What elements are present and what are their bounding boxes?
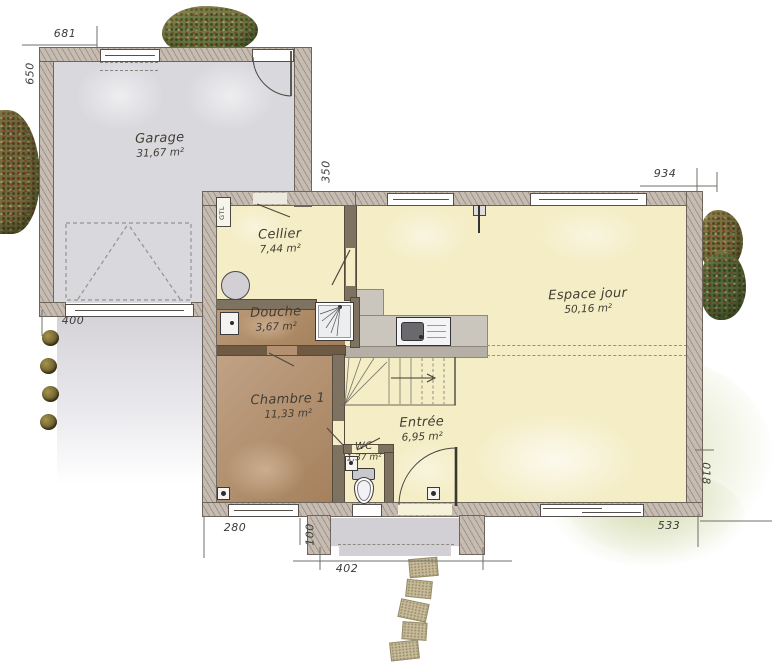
garage-south-wall-left — [40, 303, 65, 316]
kitchen-counter-step — [356, 290, 383, 316]
stepping-stone — [405, 579, 433, 600]
tree-left — [0, 110, 40, 234]
cellier-douche-wall — [216, 300, 316, 309]
bush-dot — [40, 414, 57, 430]
water-heater — [221, 271, 250, 300]
bay-window — [540, 504, 644, 517]
wc-right-wall — [385, 453, 393, 503]
wc-window — [352, 504, 382, 517]
basin-drain — [349, 461, 353, 465]
sink-drainer-line — [427, 331, 446, 332]
wc-door-opening — [352, 445, 378, 453]
door-stop — [217, 487, 230, 500]
bay-window-slider-line — [543, 508, 602, 509]
douche-chambre-door-opening — [267, 346, 297, 355]
floor-plan: GTL — [0, 0, 775, 666]
sink-drainer-line — [427, 337, 446, 338]
house-east-wall — [687, 192, 702, 516]
wall-post — [478, 205, 480, 233]
chambre-window — [228, 504, 299, 517]
garage-vent-marks — [100, 62, 158, 71]
bush-dot — [42, 330, 59, 346]
bush-dot — [42, 386, 59, 402]
dim-porch-width: 402 — [326, 562, 368, 575]
garage-north-window — [100, 49, 160, 62]
bay-window-slider-line — [582, 512, 641, 513]
garage-door-panel — [65, 304, 194, 317]
stepping-stone — [389, 640, 420, 662]
wc-washbasin — [345, 456, 358, 471]
cellier-door-opening — [346, 248, 355, 286]
dim-garage-house-offset: 350 — [320, 155, 333, 189]
door-stop — [427, 487, 440, 500]
garage-cellier-door-opening — [253, 193, 287, 204]
entrance-porch — [330, 518, 460, 556]
garage-west-wall — [40, 48, 53, 316]
door-stop-dot — [431, 491, 436, 496]
dim-garage-depth: 650 — [24, 57, 37, 91]
stepping-stone — [397, 598, 429, 623]
sink-faucet — [419, 335, 423, 339]
chambre-floor — [216, 355, 333, 503]
shower-tray — [315, 302, 354, 341]
living-north-window-1 — [387, 193, 454, 206]
driveway — [57, 316, 215, 484]
dim-garage-width: 681 — [45, 27, 85, 40]
chambre-door-opening — [333, 421, 344, 445]
stepping-stone — [401, 621, 427, 641]
kitchen-living-separation — [487, 345, 687, 356]
living-north-window-2 — [530, 193, 647, 206]
garage-east-wall — [295, 48, 311, 206]
gtl-label: GTL — [218, 199, 228, 227]
porch-pier-left — [308, 516, 330, 554]
stepping-stone — [408, 557, 439, 578]
garage-side-door-opening — [252, 49, 294, 62]
entrance-door-opening — [398, 504, 452, 515]
house-west-wall — [203, 192, 216, 516]
tree-right-lower — [700, 252, 746, 320]
door-stop-dot — [221, 491, 226, 496]
porch-pier-right — [460, 516, 484, 554]
sink-drainer-line — [427, 325, 446, 326]
douche-washbasin — [220, 312, 239, 335]
dim-bay-window: 533 — [648, 519, 690, 532]
bush-dot — [40, 358, 57, 374]
basin-drain — [230, 321, 234, 325]
kitchen-half-wall — [340, 347, 487, 357]
dim-chambre-window: 280 — [214, 521, 256, 534]
porch-dashed-line — [338, 544, 454, 545]
kitchen-sink — [396, 317, 451, 346]
dim-house-width: 934 — [645, 167, 685, 180]
